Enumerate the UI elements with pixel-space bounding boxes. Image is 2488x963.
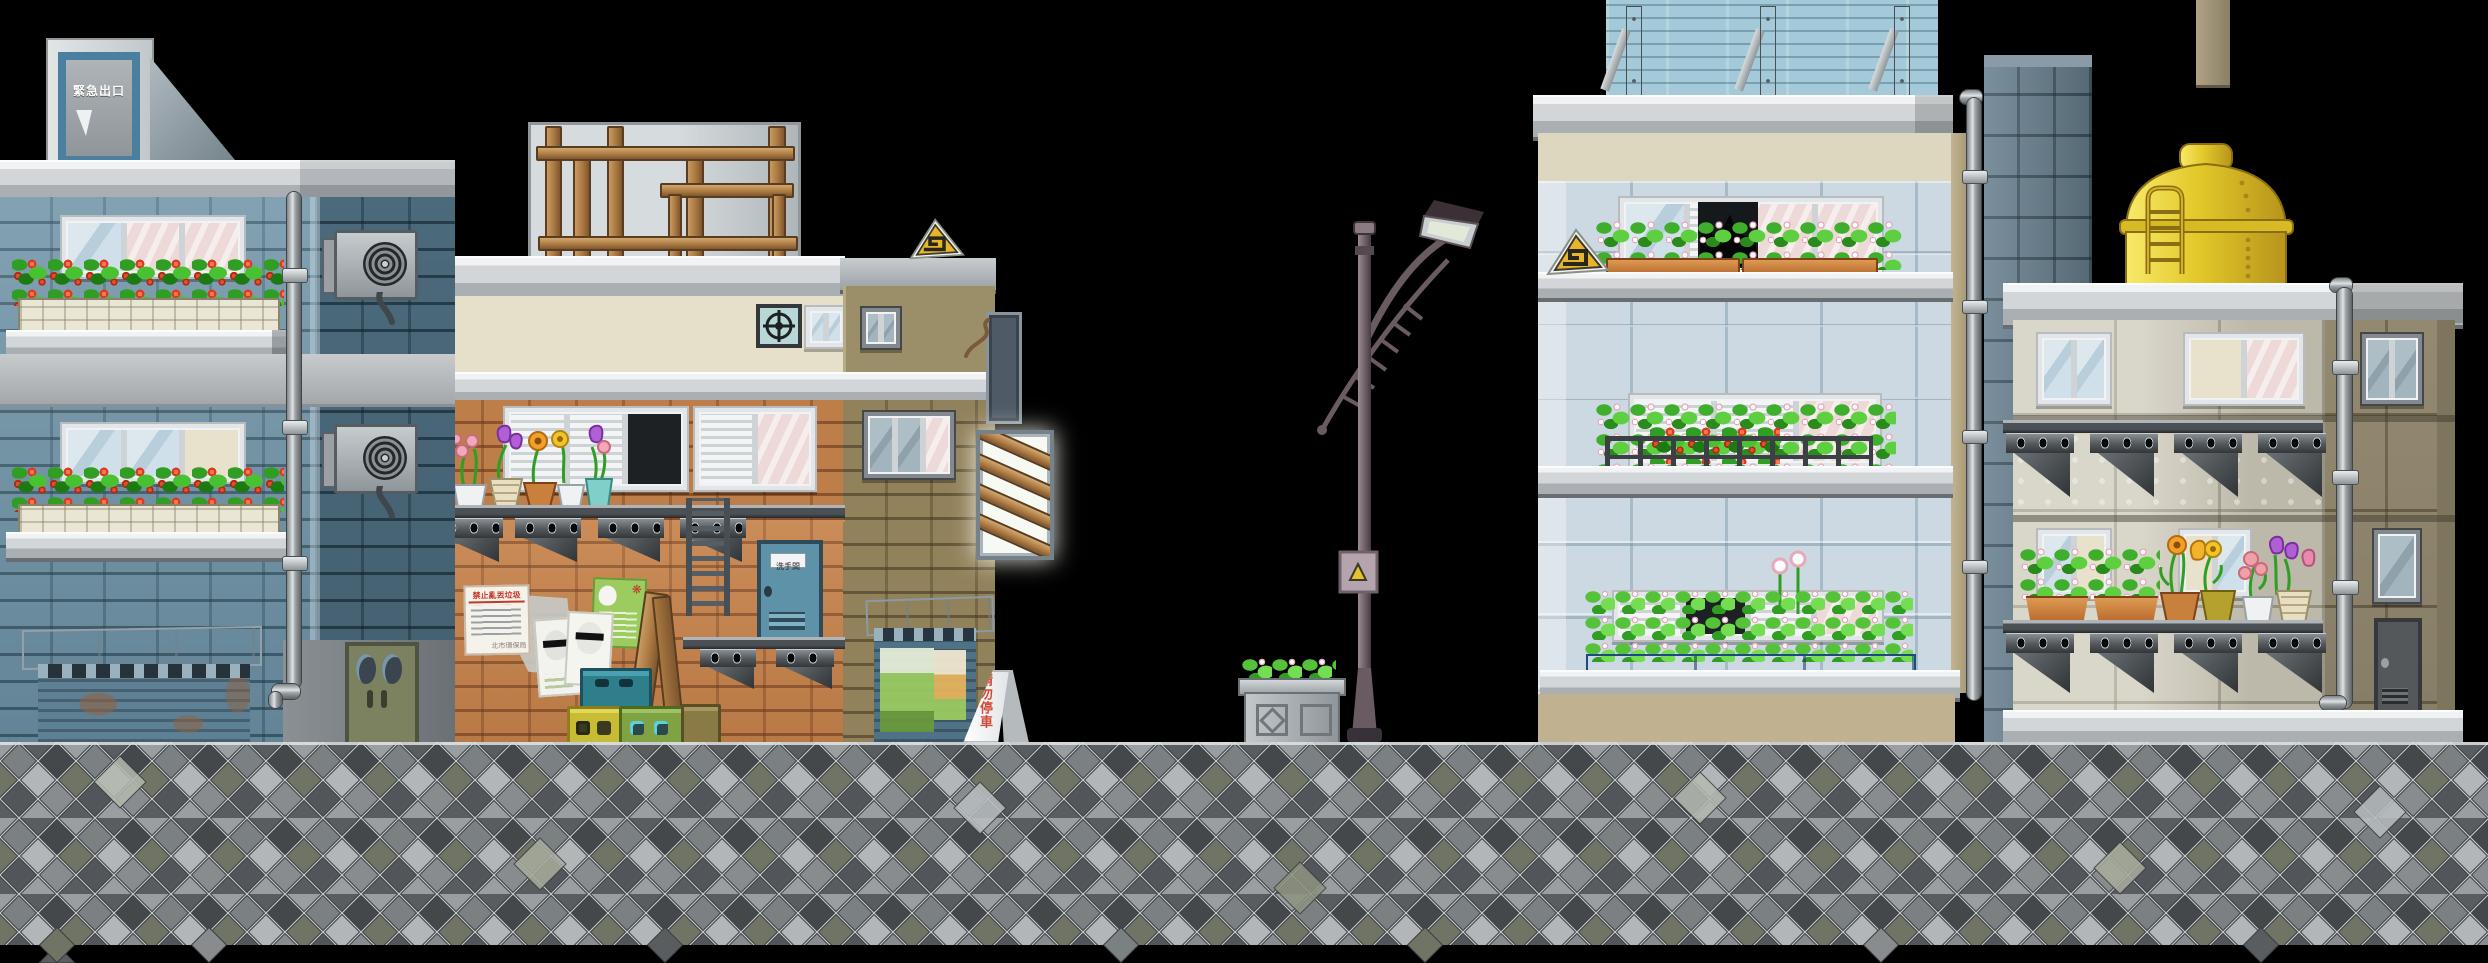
lamp-arm <box>1364 234 1454 345</box>
floor-divider <box>2013 515 2455 522</box>
drain-pipe <box>1967 98 1981 700</box>
lamp-base-foot <box>1347 728 1382 742</box>
floor-ledge <box>1538 272 1953 302</box>
pipe-bracket <box>282 420 308 435</box>
window-pane <box>2247 340 2297 398</box>
restroom-sign-label: 洗手間 <box>776 562 800 571</box>
drain-pipe <box>287 192 301 688</box>
window-pane <box>2380 536 2414 596</box>
street-scene: 禁止亂丟垃圾 北市環保局 ❋ 洗手間 <box>0 0 2488 963</box>
shelf-bracket <box>2090 433 2158 453</box>
rooftop-sloped-wing <box>150 57 235 160</box>
floor-ledge <box>6 532 302 562</box>
ac-fan-grill-icon <box>361 434 409 482</box>
shelf-bracket <box>776 649 834 667</box>
scaffold-rail <box>536 146 795 161</box>
bracket-holes <box>2094 635 2154 651</box>
bracket-holes <box>780 651 830 665</box>
planter-carving-icon <box>1256 704 1288 736</box>
roller-shutter-rusty <box>38 664 250 742</box>
door-handle-icon <box>367 690 373 708</box>
window-pane <box>868 314 878 342</box>
double-door <box>345 642 419 750</box>
pipe-bracket <box>282 268 308 283</box>
shelf-bracket <box>598 518 664 538</box>
vent-fan-icon <box>760 308 798 344</box>
window-pane <box>898 418 920 472</box>
door-handle-icon <box>381 690 387 708</box>
shelf-bracket <box>2174 633 2242 653</box>
ac-drain-hose-icon <box>374 486 398 522</box>
roller-shutter <box>874 628 976 742</box>
drain-pipe-elbow <box>2320 696 2346 710</box>
clover-planter-foliage <box>2020 545 2160 601</box>
door-oval-window <box>382 654 402 684</box>
window-pane <box>884 314 894 342</box>
censor-bar-icon <box>575 632 603 640</box>
window-pane <box>2044 340 2071 398</box>
potted-flowers-group <box>448 413 613 508</box>
exit-door: 緊急出口 <box>66 60 132 156</box>
roof-slab-shadow <box>2340 283 2463 323</box>
roof-slab-shadow <box>300 160 455 198</box>
shelf-bracket <box>700 649 756 667</box>
bracket-holes <box>2010 635 2070 651</box>
shelf-bracket <box>2174 433 2242 453</box>
balcony-shelf-bar <box>2003 620 2323 633</box>
shelf-bracket <box>2090 633 2158 653</box>
poster-body-lines <box>471 605 522 636</box>
base-band <box>1538 694 1955 742</box>
door-knob-icon <box>764 586 772 597</box>
bottle-slot <box>576 721 590 735</box>
pipe-bracket <box>282 556 308 571</box>
crate-handle-hole <box>595 679 609 687</box>
bush-planter <box>1238 656 1342 742</box>
pipe-bracket <box>1962 300 1988 314</box>
window-pane <box>758 414 809 484</box>
billboard-post <box>1760 6 1776 99</box>
ac-drain-hose-icon <box>374 292 398 328</box>
no-parking-label: 請勿停車 <box>975 673 994 729</box>
pipe-bracket <box>1962 430 1988 444</box>
bracket-holes <box>2262 635 2322 651</box>
bracket-holes <box>2178 435 2238 451</box>
no-littering-stamp: 北市環保局 <box>491 640 526 651</box>
tower-window-mid <box>862 410 956 480</box>
flower-pot-group <box>2155 525 2320 625</box>
bracket-shelf-bar <box>435 505 845 518</box>
planter-carving-icon <box>1300 704 1332 736</box>
scaffold-rail <box>538 236 798 251</box>
ac-fan-grill-icon <box>361 240 409 288</box>
facade-edge-column <box>2437 320 2455 742</box>
bottle-slot <box>654 721 668 735</box>
no-littering-poster: 禁止亂丟垃圾 北市環保局 <box>463 584 530 655</box>
door-oval-window <box>356 654 376 684</box>
pipe-bracket <box>2332 580 2359 595</box>
ac-body <box>334 230 418 300</box>
chain-ladder <box>686 498 730 616</box>
no-littering-title: 禁止亂丟垃圾 <box>468 590 524 604</box>
door-vent-slats <box>769 612 805 630</box>
window-pane <box>870 418 892 472</box>
roof-slab-shadow <box>1915 95 1953 135</box>
balcony-shelf-bar <box>2003 420 2323 433</box>
stairwell-tower-cap <box>1984 55 2092 67</box>
small-window <box>804 305 848 349</box>
a-frame-sign: 請勿停車 <box>963 670 1029 743</box>
ac-body <box>334 424 418 494</box>
pipe-bracket <box>2332 360 2359 375</box>
exit-door-frame: 緊急出口 <box>58 52 140 164</box>
loose-wire-icon <box>958 316 1000 362</box>
window-mid-right <box>2372 528 2422 604</box>
service-door <box>2374 618 2422 722</box>
bracket-holes <box>2178 635 2238 651</box>
window-top-right <box>2360 332 2424 406</box>
shelf-bracket <box>515 518 581 538</box>
bracket-holes <box>2262 435 2322 451</box>
door-handle-icon <box>76 110 92 136</box>
triangle-warning-sign <box>908 218 966 260</box>
shelf-bracket <box>2006 433 2074 453</box>
water-tank <box>2118 140 2303 290</box>
shop-window <box>693 406 817 492</box>
triangle-warning-sign <box>1546 228 1610 276</box>
door-vent-slats <box>2382 688 2408 704</box>
cream-band <box>1538 133 1955 186</box>
ac-unit <box>322 424 414 496</box>
tower-window <box>860 306 902 350</box>
concrete-band <box>0 354 455 407</box>
shutter-top-band <box>874 628 976 641</box>
vent-fan-housing <box>756 304 802 348</box>
planter-diamond-icon <box>1259 707 1286 734</box>
floor-ledge <box>1538 466 1953 498</box>
bracket-shelf-bar <box>683 637 845 649</box>
pipe-bracket <box>2332 470 2359 485</box>
drain-pipe <box>2337 288 2352 708</box>
drain-pipe-tip <box>269 692 282 708</box>
bracket-holes <box>519 520 577 536</box>
restroom-door: 洗手間 <box>757 540 823 648</box>
bottle-slot <box>630 721 644 735</box>
shutter-top-band <box>38 664 250 678</box>
shutter-poster-green <box>880 648 934 732</box>
bracket-holes <box>602 520 660 536</box>
window-pane <box>2368 340 2389 398</box>
pipe-bracket <box>1962 560 1988 574</box>
window-top <box>2183 332 2305 406</box>
window-pane <box>2191 340 2241 398</box>
bottle-slot <box>597 721 611 735</box>
flower-box-floor1 <box>1585 588 1913 662</box>
door-knob-icon <box>2381 658 2389 668</box>
window-pane <box>2395 340 2416 398</box>
window-pane <box>2077 340 2104 398</box>
lamp-base-flare <box>1352 668 1377 735</box>
window-pane <box>926 418 948 472</box>
ac-unit <box>322 230 414 302</box>
backlit-slat-sign <box>976 430 1054 560</box>
railing-mid-bar <box>1605 455 1873 459</box>
emergency-exit-label: 緊急出口 <box>66 82 132 99</box>
shelf-bracket <box>2258 433 2326 453</box>
shutter-poster-orange <box>934 650 966 720</box>
window-pane <box>701 414 752 484</box>
bracket-holes <box>2094 435 2154 451</box>
shelf-bracket <box>2258 633 2326 653</box>
billboard-post <box>1894 6 1910 99</box>
window-pane <box>829 313 840 341</box>
pipe-bracket <box>1962 170 1988 184</box>
bracket-holes <box>704 651 752 665</box>
window-pane <box>628 414 681 484</box>
bracket-holes <box>2010 435 2070 451</box>
crate-handle-hole <box>619 679 633 687</box>
planter-body <box>1244 692 1340 746</box>
stone-mosaic-wall <box>0 742 2488 963</box>
window-top <box>2036 332 2112 406</box>
chimney-block <box>2196 0 2230 88</box>
restroom-door-sign: 洗手間 <box>770 553 806 568</box>
poster-blob-character <box>598 585 617 606</box>
shelf-bracket <box>2006 633 2074 653</box>
maple-logo-icon: ❋ <box>632 582 643 596</box>
billboard-post <box>1626 6 1642 99</box>
window-pane <box>812 313 823 341</box>
rooftop-exit-hut: 緊急出口 <box>46 38 154 168</box>
